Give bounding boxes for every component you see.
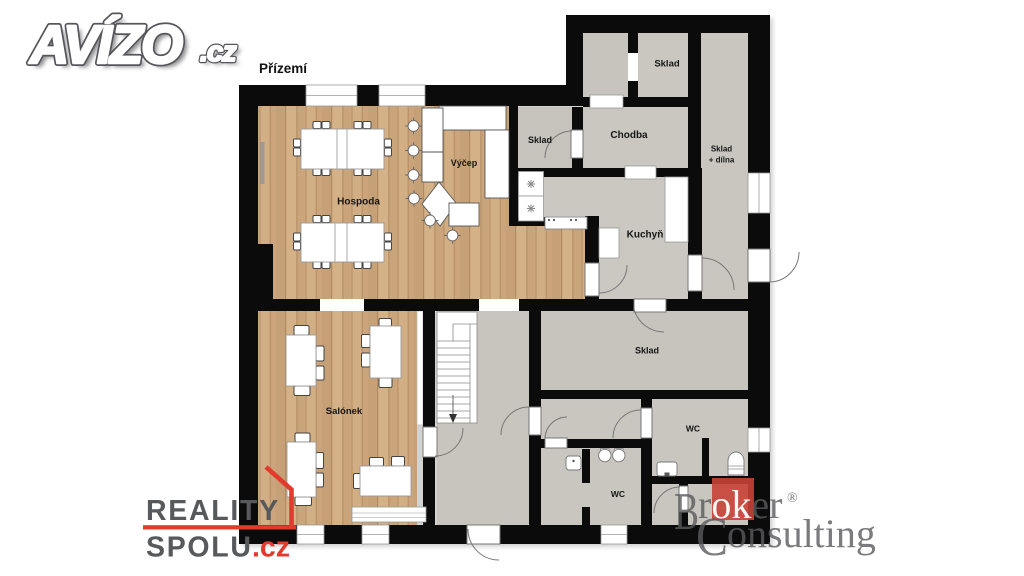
svg-text:Výčep: Výčep: [451, 158, 478, 168]
svg-text:®: ®: [787, 491, 798, 506]
svg-text:.cz: .cz: [252, 532, 290, 564]
svg-text:onsulting: onsulting: [727, 511, 876, 556]
svg-text:Chodba: Chodba: [610, 130, 648, 141]
svg-text:Hospoda: Hospoda: [337, 197, 380, 208]
svg-text:Kuchyň: Kuchyň: [627, 230, 664, 241]
svg-text:.cz: .cz: [200, 36, 237, 68]
svg-text:Sklad: Sklad: [635, 346, 659, 356]
svg-text:+ dílna: + dílna: [709, 156, 735, 165]
svg-text:WC: WC: [611, 489, 625, 499]
svg-text:Přízemí: Přízemí: [259, 61, 308, 76]
svg-text:C: C: [696, 506, 728, 567]
svg-text:Sklad: Sklad: [654, 59, 680, 70]
svg-text:WC: WC: [686, 424, 700, 434]
svg-text:SPOLU: SPOLU: [146, 532, 253, 564]
svg-text:AVÍZO: AVÍZO: [28, 15, 183, 75]
svg-text:Salónek: Salónek: [326, 406, 363, 417]
svg-text:REALITY: REALITY: [146, 495, 280, 527]
svg-text:Sklad: Sklad: [528, 135, 552, 145]
svg-text:Sklad: Sklad: [711, 145, 732, 154]
